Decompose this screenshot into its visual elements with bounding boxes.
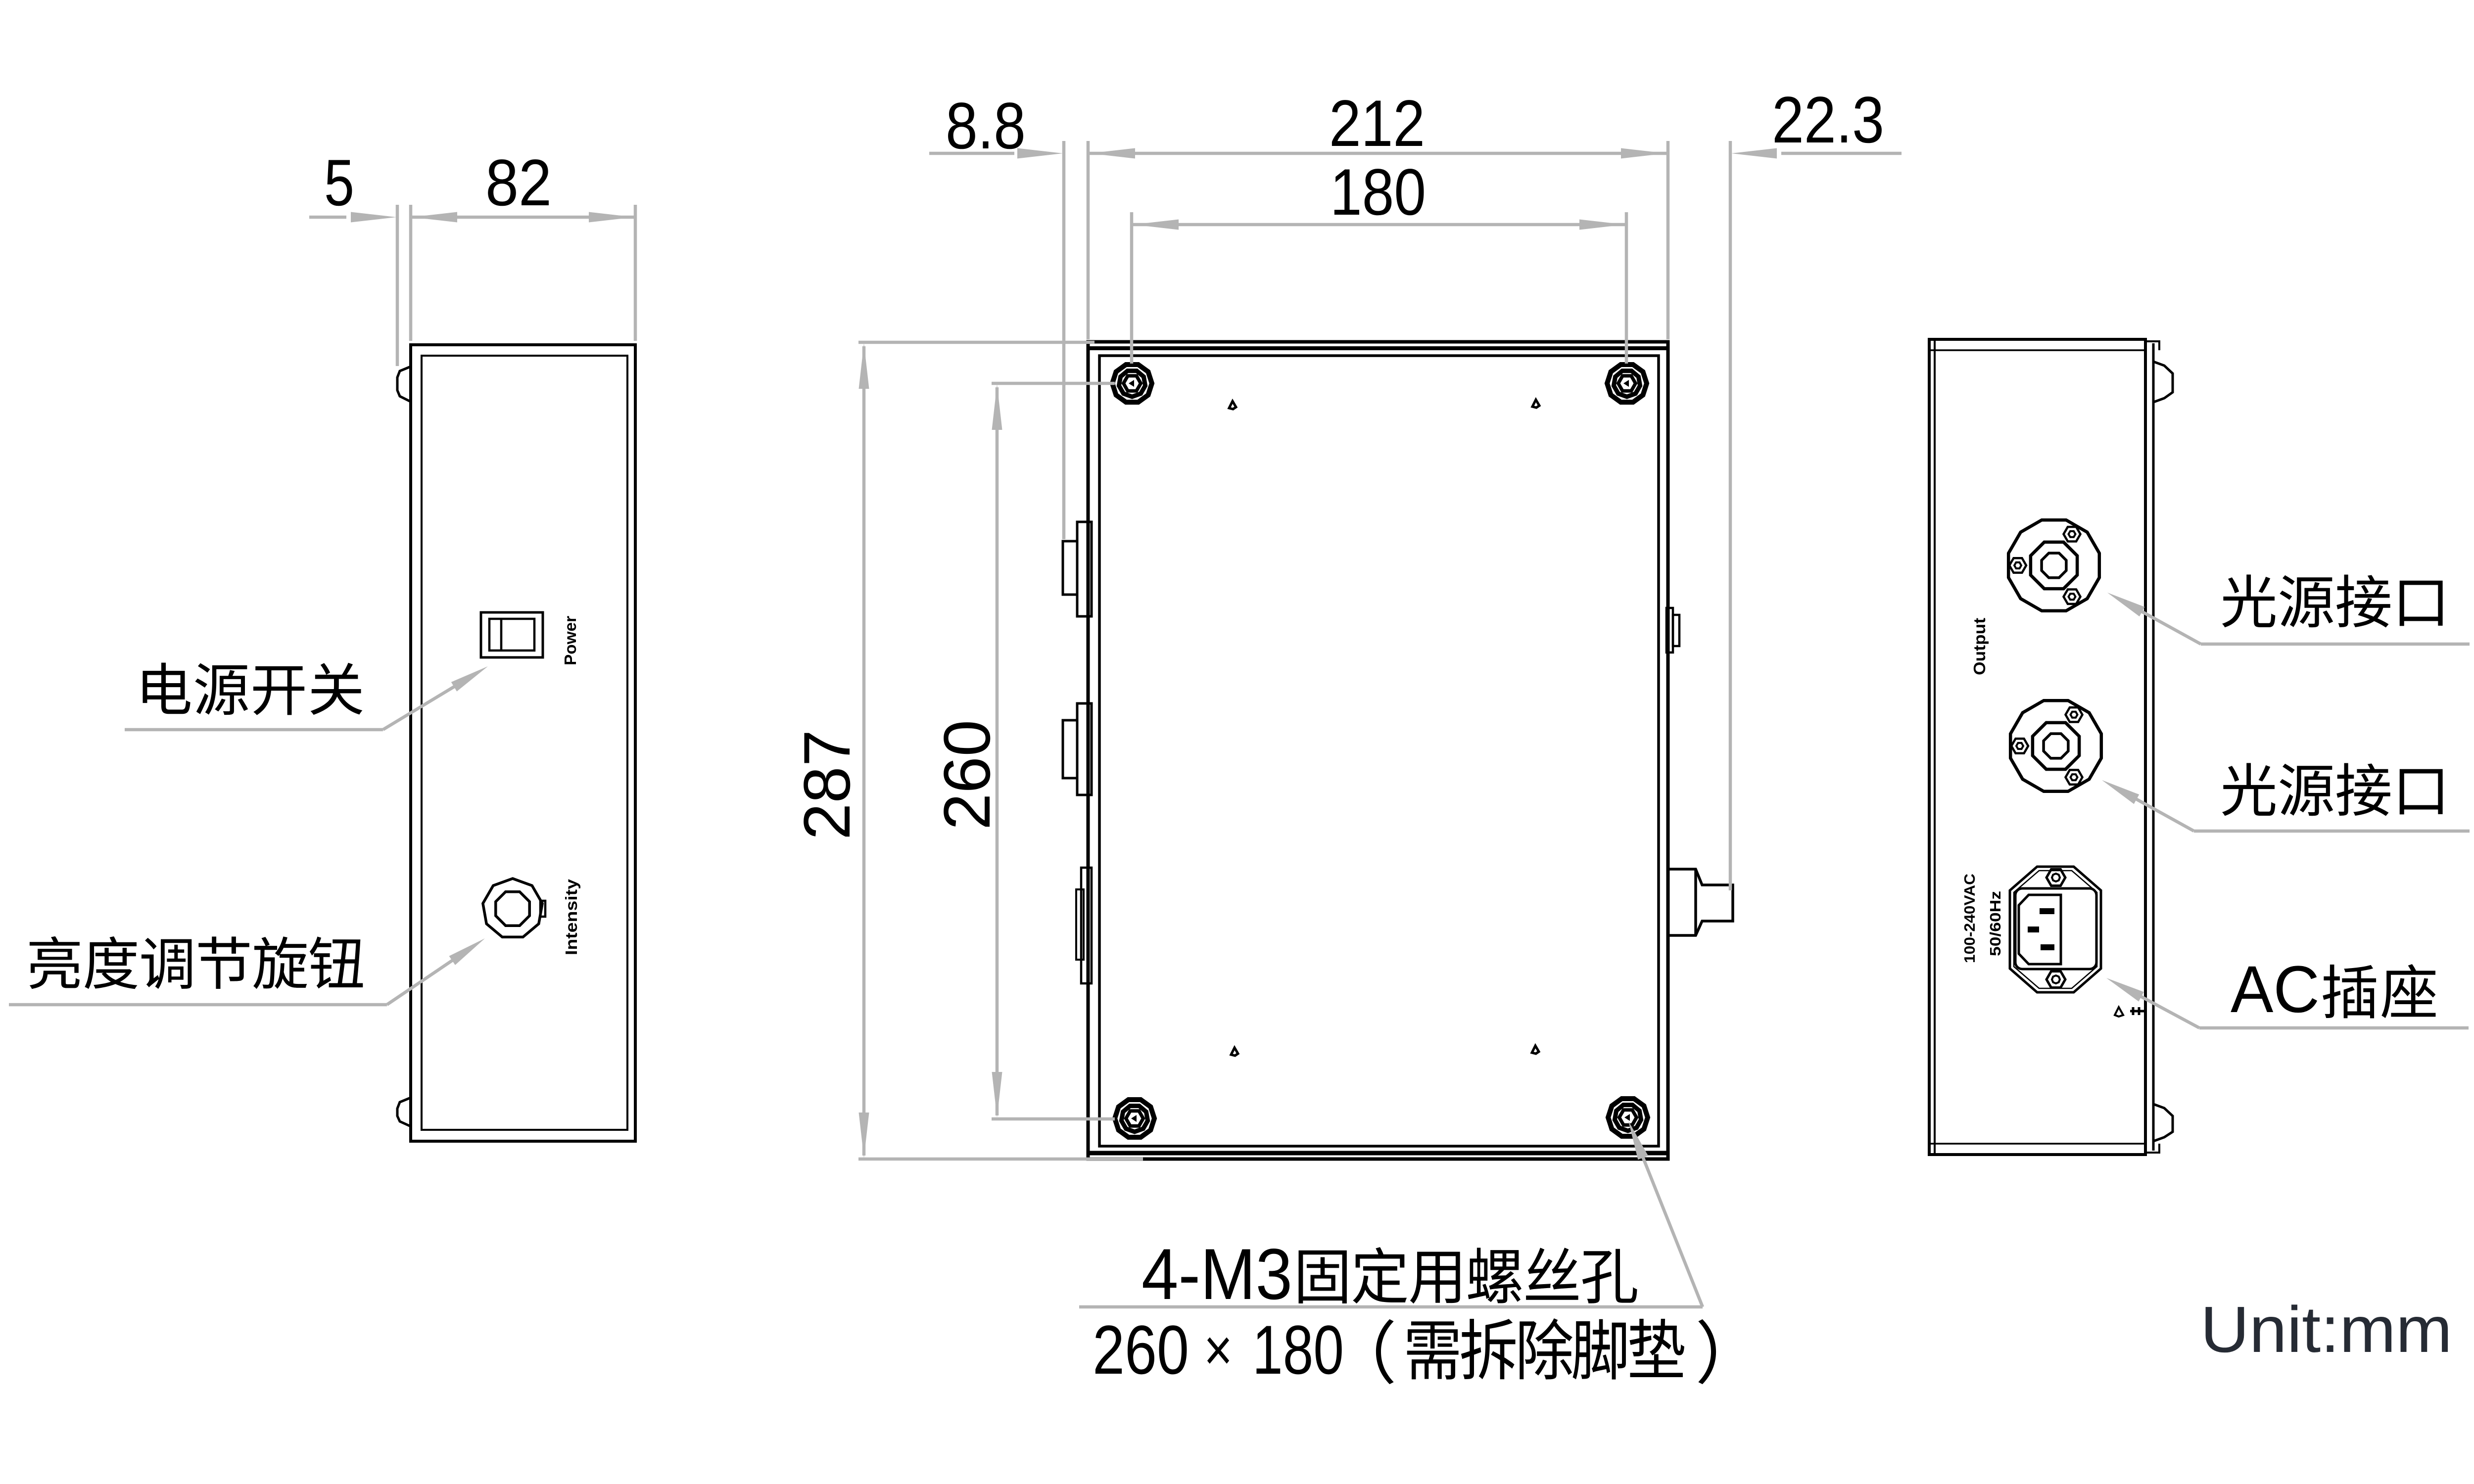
svg-text:Power: Power	[561, 616, 579, 665]
svg-text:Unit:mm: Unit:mm	[2200, 1293, 2452, 1366]
svg-text:212: 212	[1329, 87, 1425, 160]
svg-text:180: 180	[1330, 156, 1426, 229]
svg-text:Output: Output	[1970, 618, 1989, 675]
svg-text:4-M3: 4-M3	[1142, 1234, 1292, 1314]
svg-text:5: 5	[324, 146, 354, 220]
svg-text:82: 82	[485, 146, 552, 220]
svg-text:Intensity: Intensity	[562, 879, 580, 955]
svg-text:×: ×	[1204, 1317, 1233, 1383]
svg-text:287: 287	[791, 730, 864, 840]
svg-text:260: 260	[1093, 1311, 1189, 1389]
svg-text:100-240VAC: 100-240VAC	[1961, 874, 1978, 963]
svg-text:180: 180	[1252, 1311, 1344, 1389]
svg-text:22.3: 22.3	[1772, 84, 1884, 157]
svg-text:AC: AC	[2231, 953, 2320, 1026]
svg-text:260: 260	[931, 720, 1004, 830]
svg-text:50/60Hz: 50/60Hz	[1987, 891, 2004, 956]
